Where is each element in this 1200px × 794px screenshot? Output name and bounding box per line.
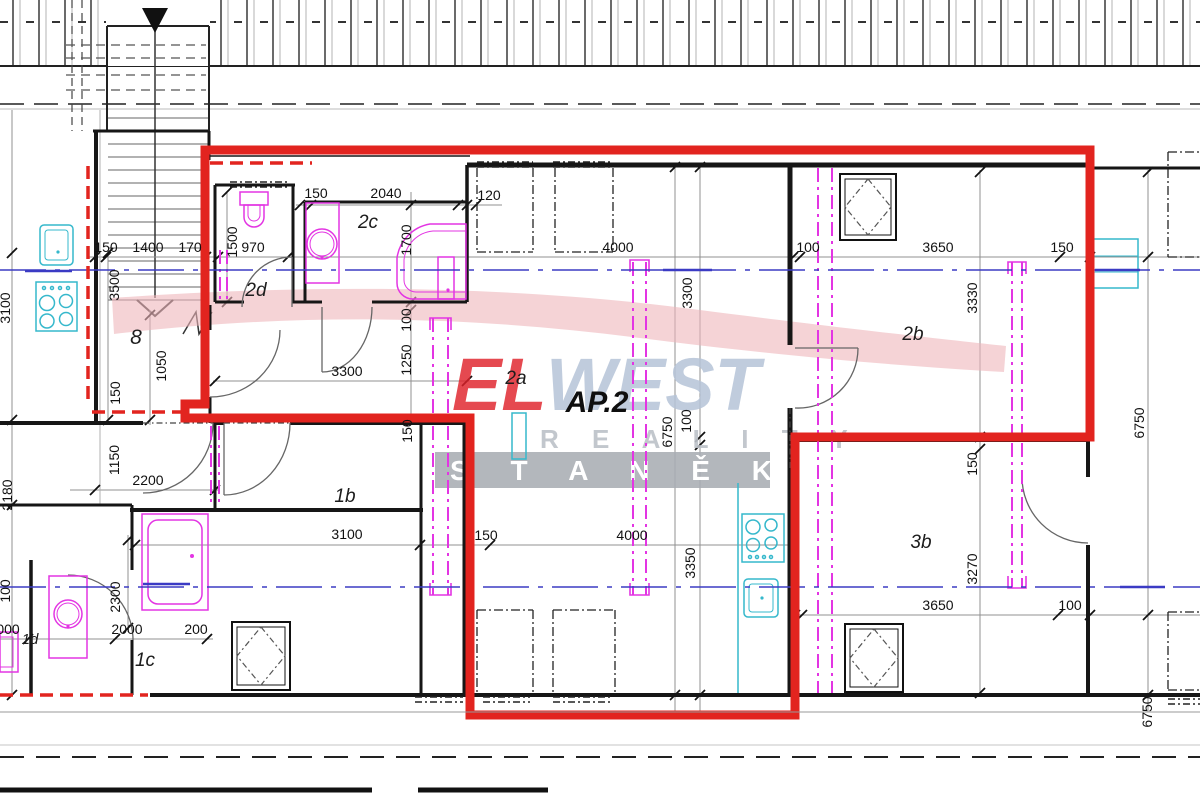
dim: 000 [0, 621, 20, 637]
dim: 2000 [111, 621, 142, 637]
room-label-1c: 1c [135, 650, 156, 671]
dim: 2180 [0, 479, 15, 510]
dim: 150 [474, 527, 498, 543]
dim: 150 [399, 419, 415, 443]
dim: 3650 [922, 239, 953, 255]
dim: 150 [94, 239, 118, 255]
dim: 1150 [106, 445, 122, 475]
dim: 6750 [1131, 407, 1147, 438]
dim: 150 [304, 185, 328, 201]
door-hall [210, 330, 280, 397]
dim: 3650 [922, 597, 953, 613]
watermark-stanek: S T A N Ě K [450, 455, 789, 486]
apartment-label: AP.2 [565, 386, 629, 419]
dim: 2300 [107, 581, 123, 612]
room-label-2a: 2a [504, 368, 526, 389]
dim: 2040 [370, 185, 401, 201]
door-3b [1022, 477, 1088, 543]
shaft-3b [845, 624, 903, 692]
room-label-1b: 1b [334, 486, 355, 507]
washbasin-2c-icon [306, 203, 339, 283]
dim: 150 [964, 452, 980, 476]
dim: 6750 [659, 416, 675, 447]
bathtub-1c-icon [142, 514, 208, 610]
stove-2a-icon [742, 514, 784, 562]
room-label-3b: 3b [910, 532, 931, 553]
upper-dashed-lines [0, 104, 1200, 109]
dim: 3300 [679, 277, 695, 308]
room-label-2d: 2d [244, 280, 268, 301]
sanitary-fixtures [0, 192, 466, 672]
bottom-lines [0, 712, 1200, 790]
watermark: EL WEST R E A L I T Y S T A N Ě K [112, 289, 1006, 488]
dim: 100 [0, 579, 13, 603]
floorplan-page: EL WEST R E A L I T Y S T A N Ě K [0, 0, 1200, 794]
dim: 200 [184, 621, 208, 637]
floorplan-drawing: EL WEST R E A L I T Y S T A N Ě K [0, 0, 1200, 794]
dim: 3300 [331, 363, 362, 379]
sink-top-left-icon [40, 225, 73, 265]
dim: 1500 [224, 226, 240, 257]
sink-2a-icon [744, 579, 778, 617]
dim: 100 [1058, 597, 1082, 613]
dim: 3500 [106, 269, 122, 300]
dim: 1250 [398, 344, 414, 375]
washbasin-1d-icon [49, 576, 87, 658]
dim: 3350 [682, 547, 698, 578]
dim: 100 [678, 409, 694, 433]
dim: 120 [477, 187, 501, 203]
room-label-2c: 2c [357, 212, 379, 233]
toilet-2d-icon [240, 192, 268, 227]
room-label-2b: 2b [901, 324, 923, 345]
dim: 100 [796, 239, 820, 255]
dim: 3330 [964, 282, 980, 313]
dim: 3270 [964, 553, 980, 584]
dim: 1050 [153, 350, 169, 381]
dim: 150 [1050, 239, 1074, 255]
dim: 150 [107, 381, 123, 405]
stove-top-left-icon [36, 282, 77, 331]
dim: 4000 [602, 239, 633, 255]
shaft-1b [232, 622, 290, 690]
dim: 1400 [132, 239, 163, 255]
room-label-1d: 1d [22, 631, 39, 648]
dim: 970 [241, 239, 265, 255]
dim: 100 [398, 308, 414, 332]
dim: 170 [178, 239, 202, 255]
dim: 4000 [616, 527, 647, 543]
room-label-8: 8 [130, 326, 142, 349]
roof-hatch-band [0, 0, 1200, 66]
window-right-icon [1092, 239, 1138, 288]
shaft-2b [840, 174, 896, 240]
dim: 3100 [331, 526, 362, 542]
fixture-left-edge-icon [0, 632, 18, 672]
door-1b [224, 423, 290, 495]
dim: 1700 [398, 224, 414, 255]
dim: 2200 [132, 472, 163, 488]
dim: 6750 [1139, 696, 1155, 727]
dim: 3100 [0, 292, 13, 323]
